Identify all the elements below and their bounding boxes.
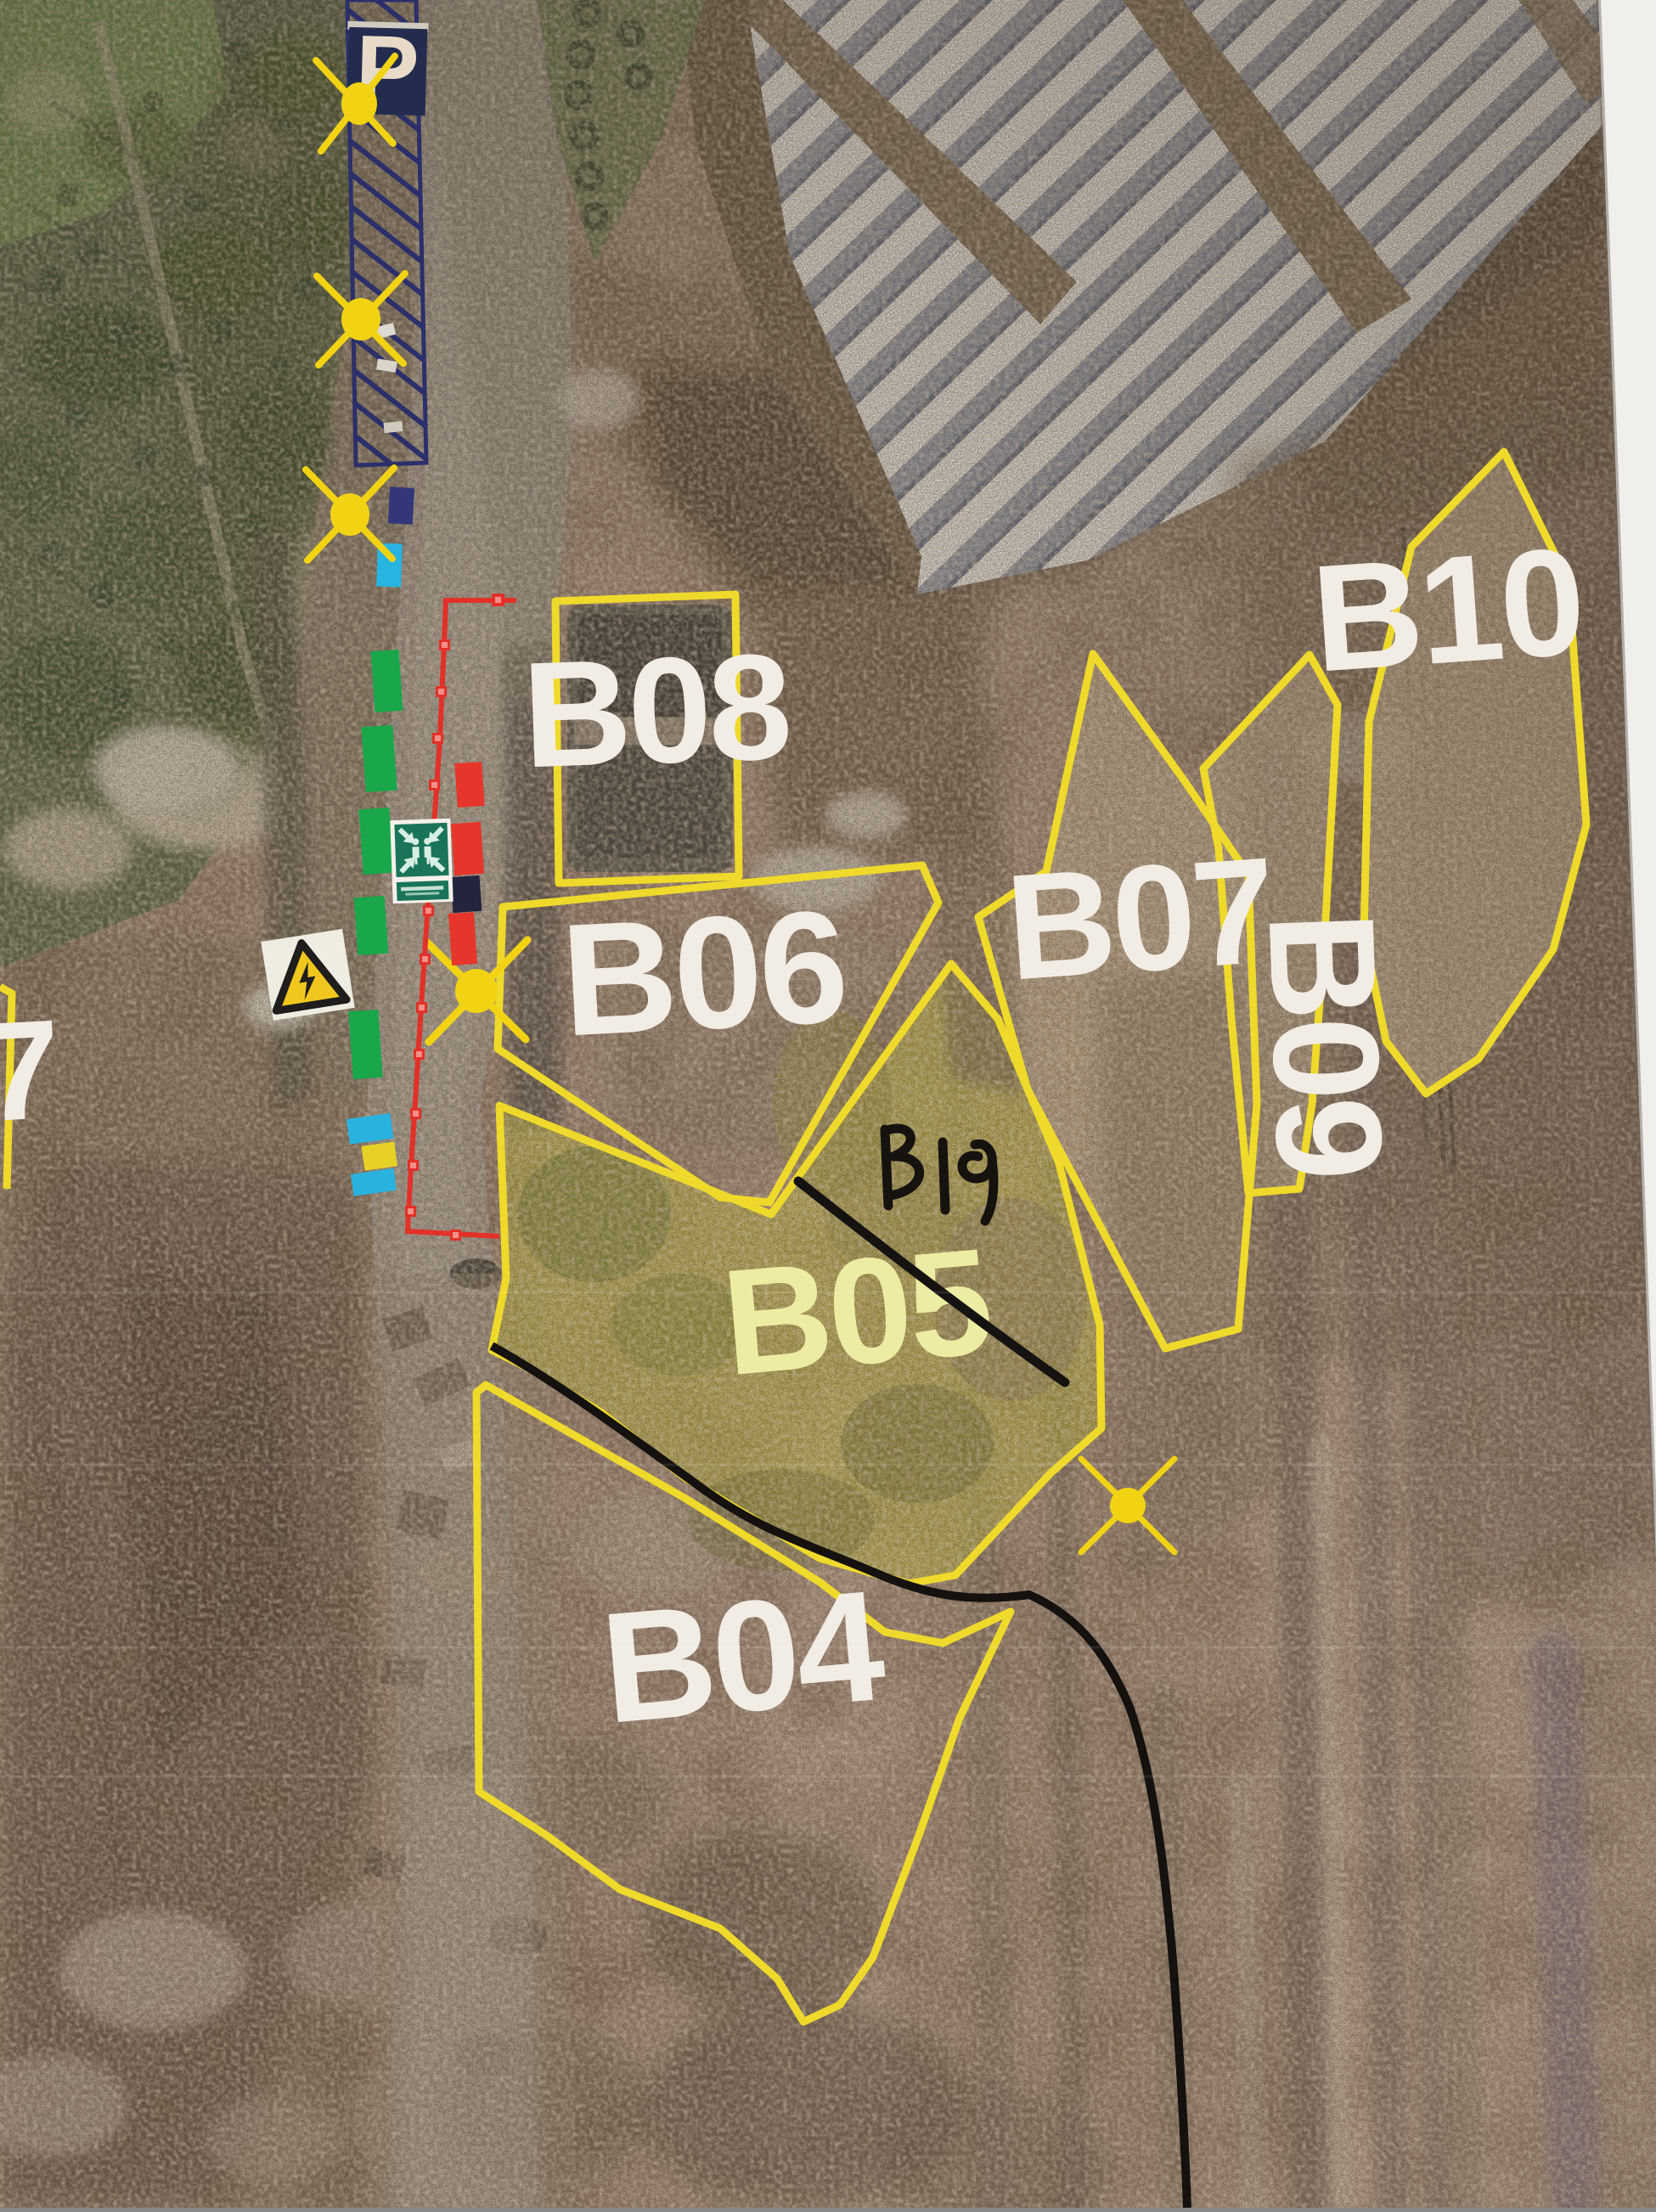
svg-text:B06: B06 (557, 876, 848, 1069)
svg-text:B08: B08 (520, 622, 791, 800)
svg-text:B05: B05 (717, 1217, 996, 1408)
svg-text:B07: B07 (1001, 825, 1278, 1011)
svg-text:B10: B10 (1307, 515, 1587, 704)
svg-text:B04: B04 (595, 1558, 890, 1757)
svg-text:B09: B09 (1237, 909, 1415, 1179)
svg-text:7: 7 (0, 991, 65, 1152)
